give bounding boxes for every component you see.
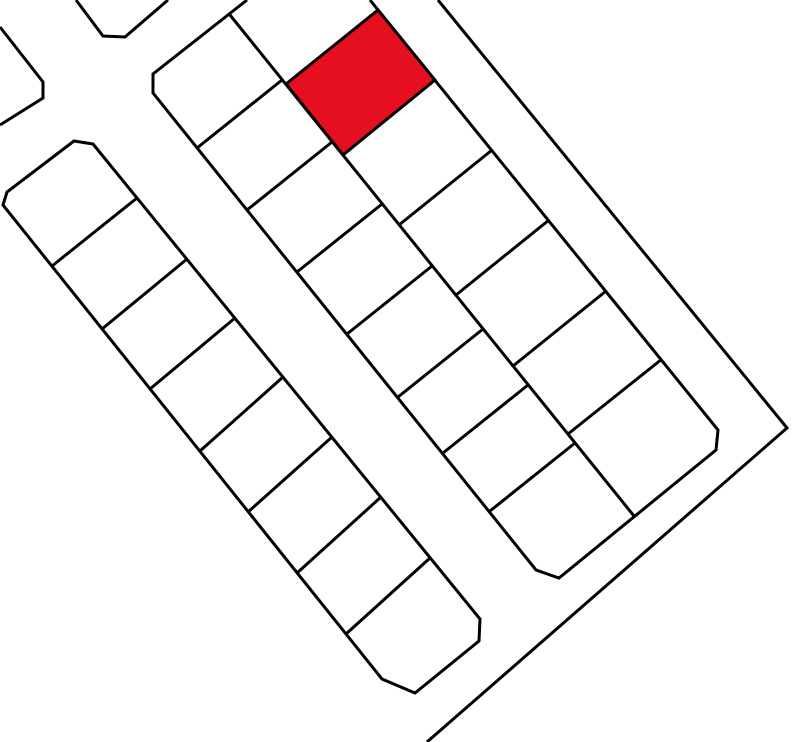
- block-middle-west-lot-line-7: [490, 443, 575, 511]
- highlighted-parcel: [286, 10, 435, 155]
- block-left-lot-line-5: [248, 437, 332, 512]
- parcel-map-image: [0, 0, 800, 742]
- block-middle-west-lot-line-4: [347, 266, 432, 334]
- block-middle-east-lot-line-3: [513, 291, 606, 366]
- block-left-lot-line-7: [346, 558, 430, 634]
- block-north-corner-outline: [76, 0, 168, 37]
- block-middle-outline: [153, 0, 718, 578]
- block-middle-east-lot-line-1: [399, 150, 492, 225]
- block-middle-east-lot-line-4: [568, 359, 662, 434]
- block-middle-east-lot-line-2: [456, 220, 549, 295]
- block-middle-west-lot-line-1: [197, 80, 282, 148]
- block-middle-west-lot-line-6: [443, 385, 528, 453]
- block-middle-west-lot-line-3: [297, 204, 382, 272]
- parcel-map-svg: [0, 0, 800, 742]
- block-middle-west-lot-line-5: [398, 329, 483, 397]
- block-northwest-corner-outline: [0, 27, 43, 125]
- street-boundary-east: [427, 0, 787, 742]
- block-left-lot-line-4: [200, 377, 283, 451]
- block-left-lot-line-3: [150, 318, 235, 389]
- block-left-lot-line-1: [52, 198, 137, 266]
- block-left-lot-line-2: [102, 259, 187, 329]
- block-middle-west-lot-line-2: [247, 142, 332, 210]
- block-left-lot-line-6: [297, 497, 381, 573]
- block-left-outline: [3, 141, 480, 693]
